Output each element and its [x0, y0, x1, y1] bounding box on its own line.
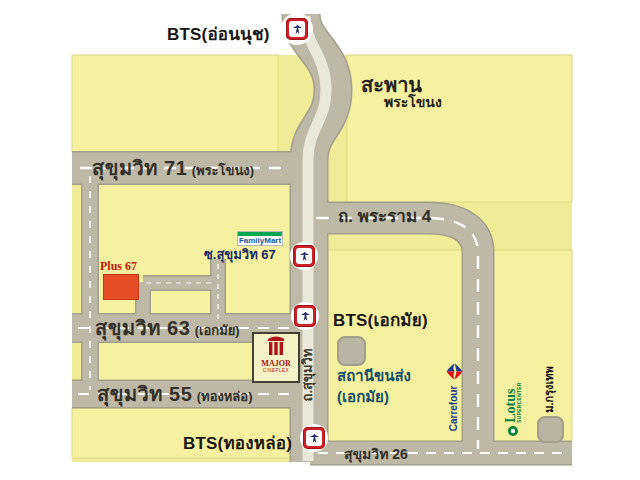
bus-terminal-building — [337, 336, 366, 366]
lotus-subname: SUPERCENTER — [517, 382, 523, 423]
bts-phrakhanong-icon — [293, 245, 315, 267]
bts-logo-icon — [297, 308, 313, 324]
road-label-sukhumvit26: สุขุมวิท 26 — [344, 443, 408, 465]
road-label-sukhumvit71-paren: (พระโขนง) — [192, 163, 254, 178]
bts-thonglor-label: BTS(ทองหล่อ) — [183, 429, 292, 456]
bts-logo-icon — [289, 21, 305, 37]
bus-terminal-label-line2: (เอกมัย) — [337, 386, 411, 407]
bts-ekkamai-icon — [294, 305, 316, 327]
road-label-rama4: ถ. พระราม 4 — [338, 203, 431, 231]
bangkok-university-building — [537, 416, 564, 443]
road-label-sukhumvit71: สุขุมวิท 71 (พระโขนง) — [92, 153, 254, 183]
major-cineplex-pillars-icon — [265, 334, 287, 356]
plus67-building-marker — [103, 274, 139, 300]
bts-thonglor-icon — [303, 427, 325, 449]
bts-onnut-label: BTS(อ่อนนุช) — [167, 20, 270, 47]
bus-terminal-label-line1: สถานีขนส่ง — [337, 365, 411, 386]
plus67-label: Plus 67 — [100, 259, 137, 274]
road-label-sukhumvit71-main: สุขุมวิท 71 — [92, 157, 187, 179]
familymart-label: FamilyMart — [238, 236, 282, 246]
bus-terminal-label: สถานีขนส่ง (เอกมัย) — [337, 365, 411, 407]
road-label-sukhumvit63-paren: (เอกมัย) — [195, 323, 240, 338]
major-cineplex-marker: MAJOR CINEPLEX — [252, 332, 300, 383]
familymart-sign: FamilyMart — [237, 231, 283, 246]
carrefour-logo-icon — [446, 363, 463, 380]
road-label-sukhumvit55-paren: (ทองหล่อ) — [197, 389, 253, 404]
lotus-name: Lotus — [504, 382, 517, 423]
road-label-sukhumvit63-main: สุขุมวิท 63 — [95, 317, 190, 339]
road-label-soi67: ซ.สุขุมวิท 67 — [204, 244, 276, 265]
bts-logo-icon — [296, 248, 312, 264]
carrefour-label: Carrefour — [447, 380, 460, 438]
map-canvas: BTS(อ่อนนุช) BTS(เอกมัย) BTS(ทองหล่อ) สะ… — [0, 0, 640, 480]
bridge-name-line2: พระโขนง — [384, 91, 442, 113]
bangkok-university-label: ม.กรุงเทพ — [543, 362, 556, 418]
bts-ekkamai-label: BTS(เอกมัย) — [333, 306, 428, 333]
bts-onnut-icon — [286, 18, 308, 40]
road-label-sukhumvit63: สุขุมวิท 63 (เอกมัย) — [95, 314, 240, 342]
road-label-sukhumvit-vertical: ถ.สุขุมวิท — [300, 339, 316, 411]
bts-logo-icon — [306, 430, 322, 446]
lotus-marker: Lotus SUPERCENTER — [500, 377, 527, 443]
major-cineplex-name: MAJOR — [254, 360, 298, 368]
major-cineplex-subname: CINEPLEX — [254, 368, 298, 374]
lotus-logo-icon — [508, 426, 519, 437]
road-label-sukhumvit55: สุขุมวิท 55 (ทองหล่อ) — [97, 381, 252, 408]
road-label-sukhumvit55-main: สุขุมวิท 55 — [97, 383, 192, 405]
